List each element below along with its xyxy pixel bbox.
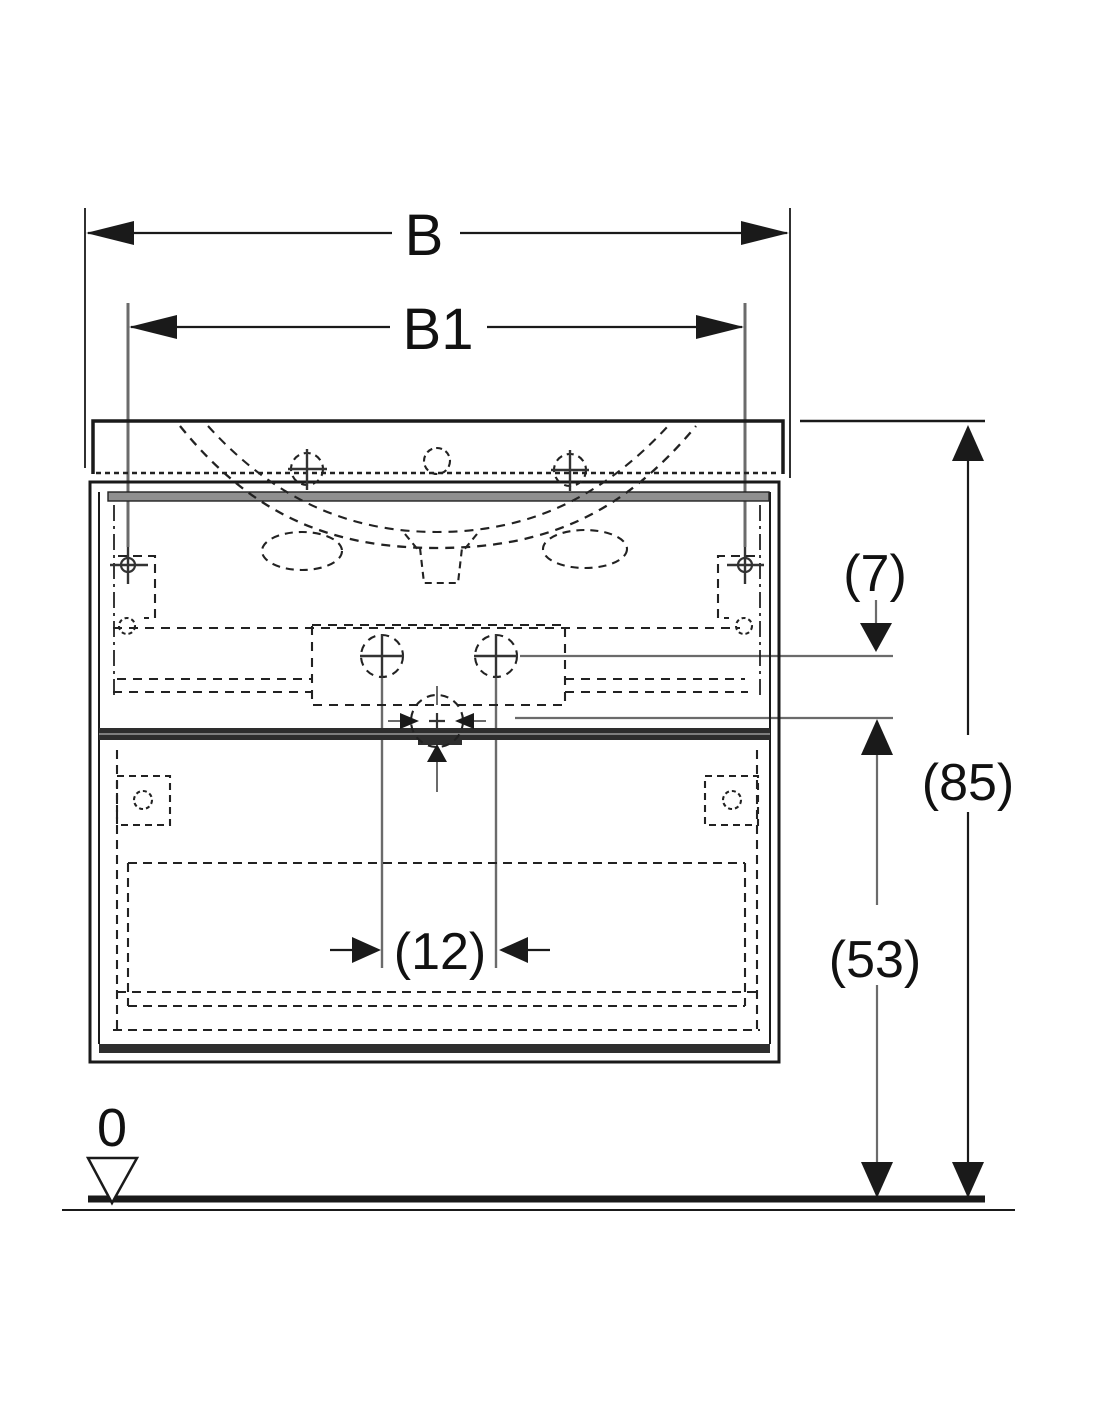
vanity-dimension-diagram: B B1 (7) (85) (12) (53) 0 (0, 0, 1100, 1422)
cabinet-bottom-band (99, 1044, 770, 1053)
siphon-cross (429, 713, 445, 729)
dim-7-label: (7) (843, 545, 907, 603)
runner-circle-right (736, 618, 752, 634)
b1-arrow-left (129, 315, 177, 339)
siphon-arrow-left (455, 713, 474, 729)
bowl-outer-curve (180, 426, 696, 548)
dim-53-arrow-up (861, 719, 893, 755)
wall-cross-left (110, 547, 148, 584)
overflow-pocket-right (543, 530, 627, 568)
datum-zero-label: 0 (97, 1098, 127, 1158)
dim-12-label: (12) (394, 923, 486, 981)
fitting-circle-left (134, 791, 152, 809)
fitting-box-right (705, 776, 758, 825)
rim-cross-right (551, 450, 589, 491)
siphon-cutout-box (312, 625, 565, 705)
faucet-hole (424, 448, 450, 474)
b-arrow-right (741, 221, 789, 245)
drain-funnel (405, 534, 477, 583)
dim-85-arrow-down (952, 1162, 984, 1198)
bowl-inner-curve (208, 426, 668, 532)
b1-arrow-right (696, 315, 744, 339)
technical-drawing-canvas: B B1 (7) (85) (12) (53) 0 (0, 0, 1100, 1422)
main-linework (62, 208, 1015, 1210)
runner-circle-left (119, 618, 135, 634)
dim-b1-label: B1 (403, 297, 474, 362)
dim-12-arrow-right (499, 937, 528, 963)
dim-b-label: B (405, 203, 444, 268)
b-arrow-left (86, 221, 134, 245)
wall-cross-right (727, 547, 764, 584)
fitting-box-left (117, 776, 170, 825)
dim-85-label: (85) (922, 754, 1014, 812)
tray-lines-upper (113, 679, 748, 692)
worktop-shadow-band (108, 492, 769, 501)
overflow-pocket-left (262, 532, 342, 570)
dim-12-arrow-left (352, 937, 381, 963)
dim-53-label: (53) (829, 931, 921, 989)
fitting-circle-right (723, 791, 741, 809)
dim-7-arrow-down (860, 623, 892, 652)
rim-cross-left (288, 449, 327, 490)
dim-85-arrow-up (952, 425, 984, 461)
siphon-arrow-right (400, 713, 419, 729)
dim-53-arrow-down (861, 1162, 893, 1198)
